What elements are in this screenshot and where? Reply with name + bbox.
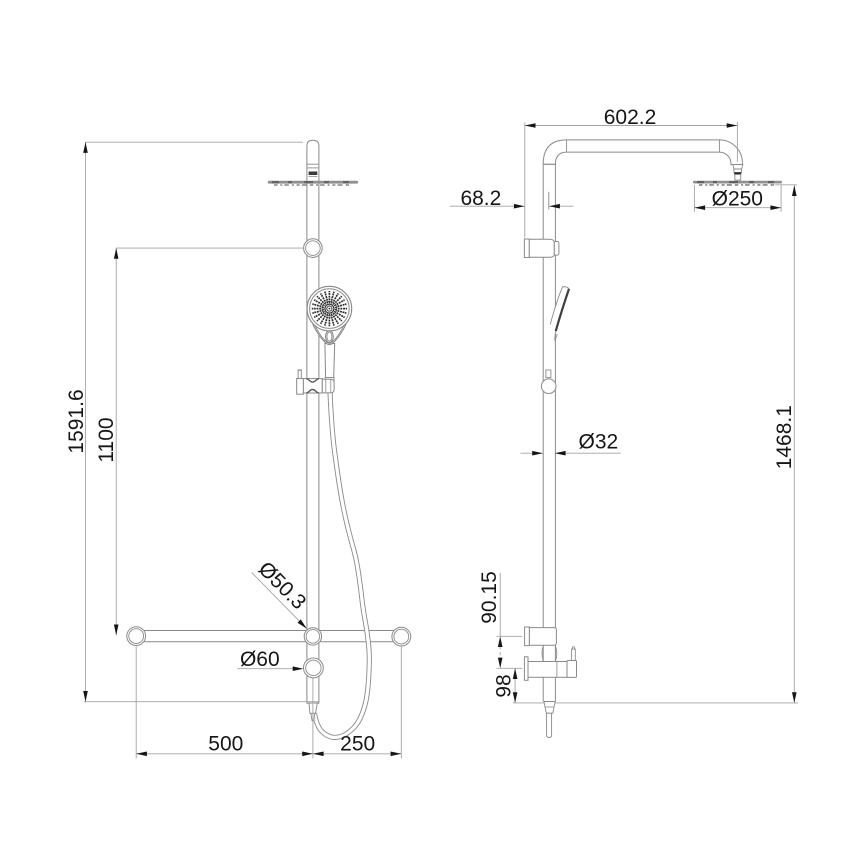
svg-text:Ø60: Ø60 [240, 648, 280, 671]
svg-text:1100: 1100 [95, 417, 118, 462]
svg-text:250: 250 [340, 732, 375, 755]
svg-text:602.2: 602.2 [604, 106, 657, 129]
svg-text:1468.1: 1468.1 [773, 405, 796, 469]
svg-text:500: 500 [208, 732, 243, 755]
svg-text:Ø32: Ø32 [579, 431, 619, 454]
svg-text:98: 98 [493, 674, 516, 697]
svg-text:68.2: 68.2 [460, 187, 501, 210]
svg-text:1591.6: 1591.6 [65, 389, 88, 453]
svg-text:90.15: 90.15 [478, 571, 501, 624]
svg-text:Ø250: Ø250 [712, 187, 763, 210]
